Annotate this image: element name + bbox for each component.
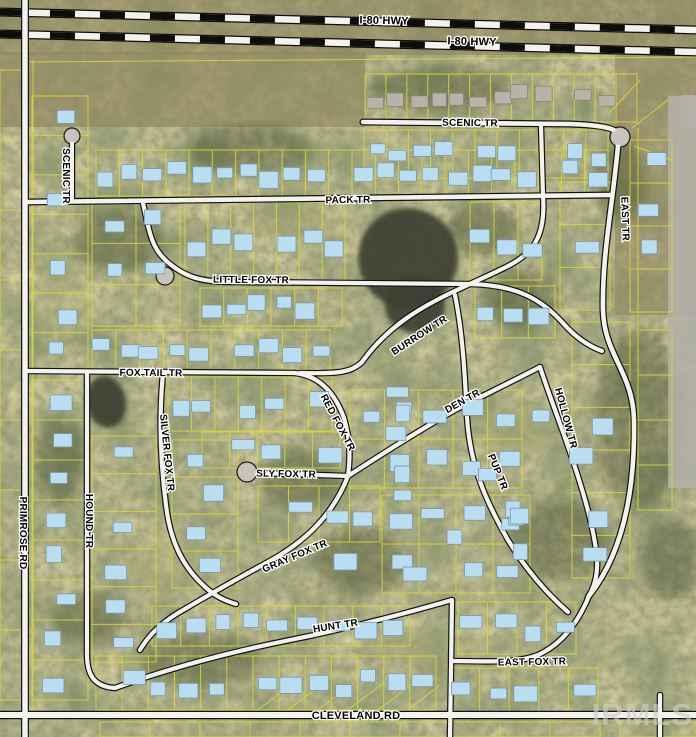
street-label: I-80 HWY bbox=[447, 35, 497, 48]
street-label: PRIMROSE RD bbox=[17, 497, 28, 570]
street-label: CLEVELAND RD bbox=[312, 710, 401, 722]
street-label: SCENIC TR bbox=[442, 118, 498, 130]
street-label: SCENIC TR bbox=[60, 148, 71, 204]
map-canvas[interactable]: I-80 HWYI-80 HWYSCENIC TRSCENIC TRPACK T… bbox=[0, 0, 696, 737]
street-label: PACK TR bbox=[325, 195, 371, 207]
street-label: I-80 HWY bbox=[359, 14, 409, 27]
street-label: LITTLE FOX TR bbox=[213, 275, 290, 287]
street-label: FOX TAIL TR bbox=[120, 368, 184, 380]
street-label: EAST FOX TR bbox=[498, 656, 567, 668]
gis-aerial-map: I-80 HWYI-80 HWYSCENIC TRSCENIC TRPACK T… bbox=[0, 0, 696, 737]
street-label: HOUND TR bbox=[83, 494, 94, 549]
street-label: EAST TR bbox=[618, 197, 631, 242]
street-label: SLY FOX TR bbox=[256, 468, 317, 480]
